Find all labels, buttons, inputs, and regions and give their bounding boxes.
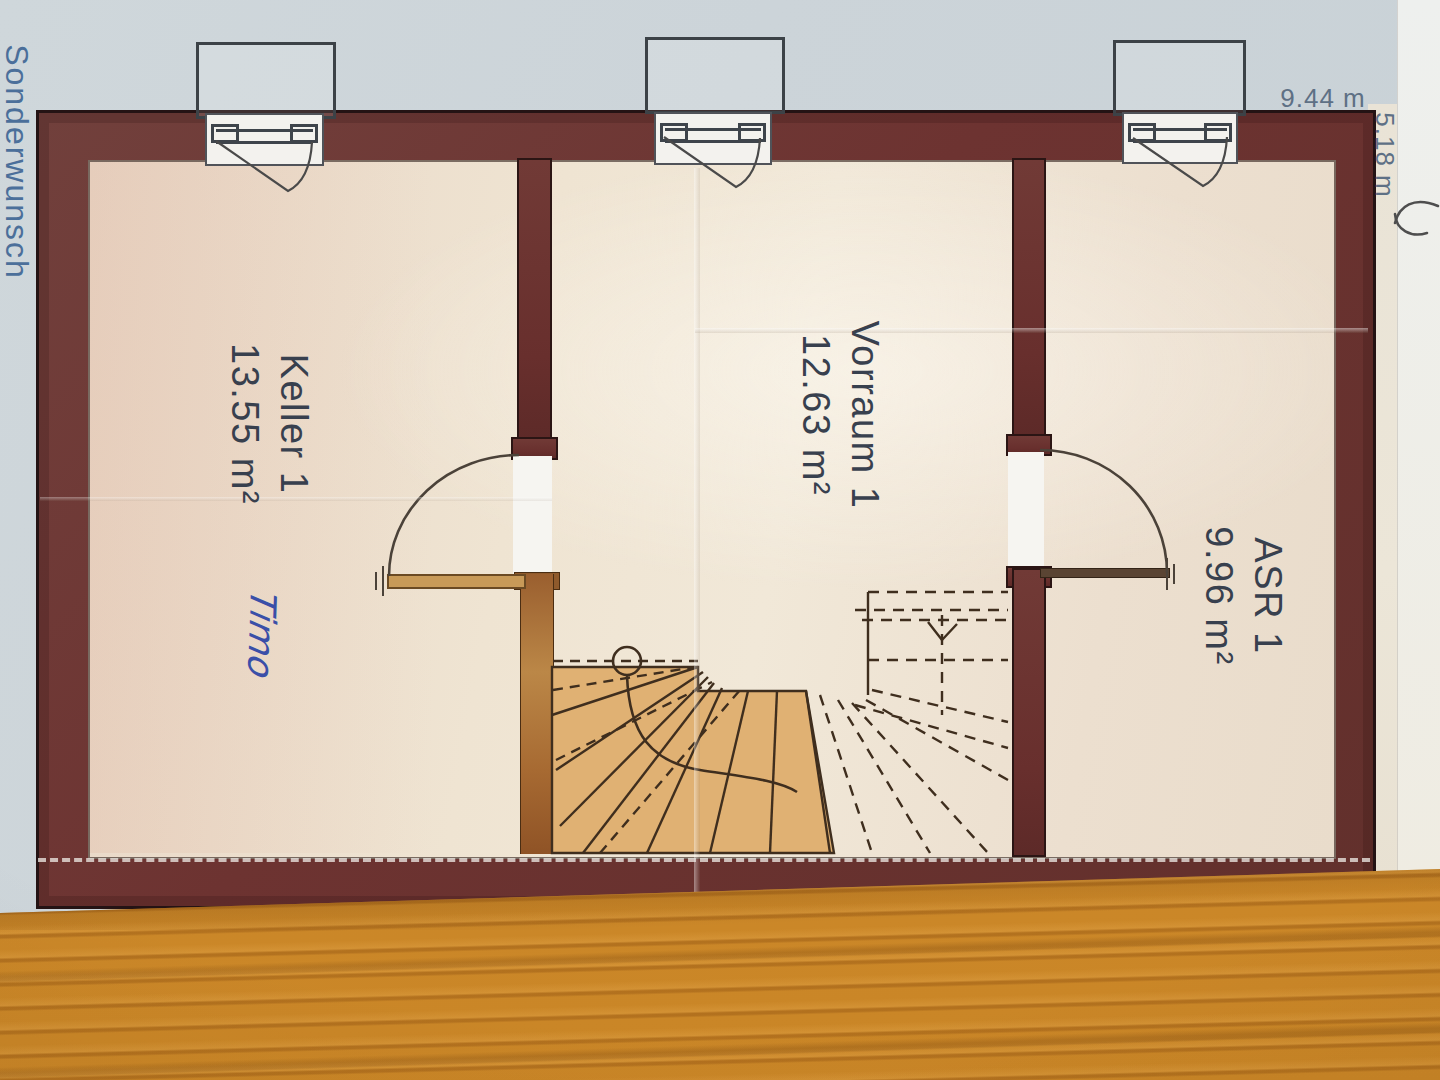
room-area-label: 13.55 m² (220, 343, 269, 505)
window-frame-end (1128, 123, 1156, 142)
window-symbol-2 (654, 112, 772, 165)
interior-wall-keller-vorraum (517, 158, 552, 443)
window-frame-end (290, 124, 318, 143)
interior-wall-vorraum-asr (1012, 158, 1046, 438)
paper-crease-dashed (38, 858, 1370, 862)
floor-plan-photo: Keller 1 13.55 m² Vorraum 1 12.63 m² ASR… (0, 0, 1440, 1080)
window-symbol-1 (205, 113, 324, 166)
door-leaf-keller (387, 574, 526, 589)
window-symbol-3 (1122, 112, 1238, 164)
handwritten-note: Timo (240, 584, 284, 679)
room-label-asr: ASR 1 9.96 m² (1194, 526, 1293, 665)
dimension-depth-label: 5.18 m (1369, 112, 1400, 198)
room-area-label: 12.63 m² (791, 321, 840, 510)
paper-shading (90, 162, 520, 853)
stair-wall (520, 574, 554, 854)
window-light-shaft-3 (1113, 40, 1246, 116)
margin-note: Sonderwunsch (0, 44, 35, 280)
room-label-keller: Keller 1 13.55 m² (220, 343, 319, 505)
room-name: Keller 1 (269, 343, 318, 505)
window-light-shaft-1 (196, 42, 336, 119)
window-frame-end (1204, 123, 1232, 142)
paper-fold-vertical (694, 168, 700, 906)
room-name: Vorraum 1 (840, 321, 889, 510)
door-opening-asr (1008, 452, 1044, 568)
door-leaf-asr (1040, 568, 1170, 578)
window-frame-end (738, 123, 766, 142)
paper-fold-strip (1397, 0, 1440, 880)
window-frame-end (211, 124, 239, 143)
door-opening-keller (513, 456, 552, 576)
room-name: ASR 1 (1243, 526, 1292, 665)
window-frame-end (660, 123, 688, 142)
dimension-width-label: 9.44 m (1280, 83, 1366, 114)
room-label-vorraum: Vorraum 1 12.63 m² (791, 321, 890, 510)
interior-wall-stair-asr (1012, 568, 1046, 857)
window-light-shaft-2 (645, 37, 785, 114)
room-area-label: 9.96 m² (1194, 526, 1243, 665)
